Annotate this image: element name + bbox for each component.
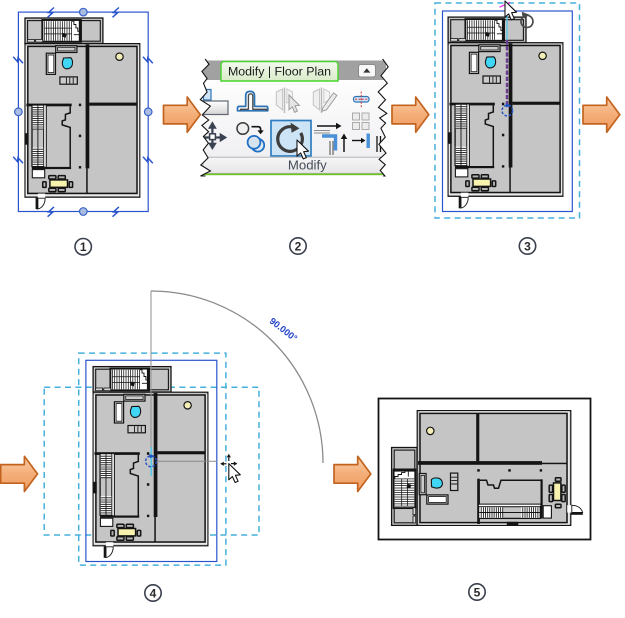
svg-text:5: 5 — [474, 585, 481, 599]
svg-text:4: 4 — [150, 586, 157, 600]
svg-text:Modify: Modify — [288, 158, 327, 173]
svg-text:3: 3 — [524, 239, 531, 253]
svg-text:2: 2 — [295, 239, 302, 253]
svg-text:Modify | Floor Plan: Modify | Floor Plan — [228, 65, 331, 79]
svg-text:1: 1 — [80, 240, 87, 254]
